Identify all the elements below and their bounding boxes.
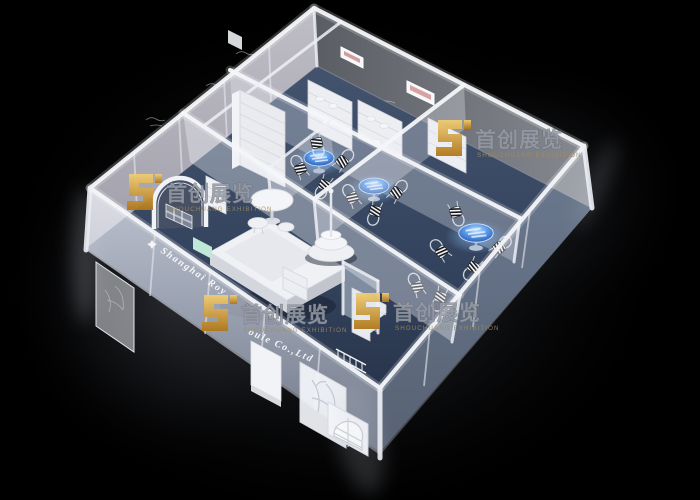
watermark-en-text: SHOUCHUANG EXHIBITION (243, 327, 348, 334)
watermark-cn-text: 首创展览 (393, 301, 481, 325)
booth-render-scene: Shanghai Roy oule Co.,Ltd 首创展览 SHOUCHUAN… (0, 0, 700, 500)
watermark-en-text: SHOUCHUANG EXHIBITION (395, 325, 500, 332)
bar-stool (278, 223, 294, 232)
watermark-en-text: SHOUCHUANG EXHIBITION (477, 152, 582, 159)
watermark-cn-text: 首创展览 (241, 303, 329, 327)
watermark-en-text: SHOUCHUANG EXHIBITION (168, 206, 273, 213)
watermark-cn-text: 首创展览 (166, 182, 254, 206)
watermark-cn-text: 首创展览 (475, 128, 563, 152)
exhibition-booth-rendering: Shanghai Roy oule Co.,Ltd 首创展览 SHOUCHUAN… (0, 0, 700, 500)
